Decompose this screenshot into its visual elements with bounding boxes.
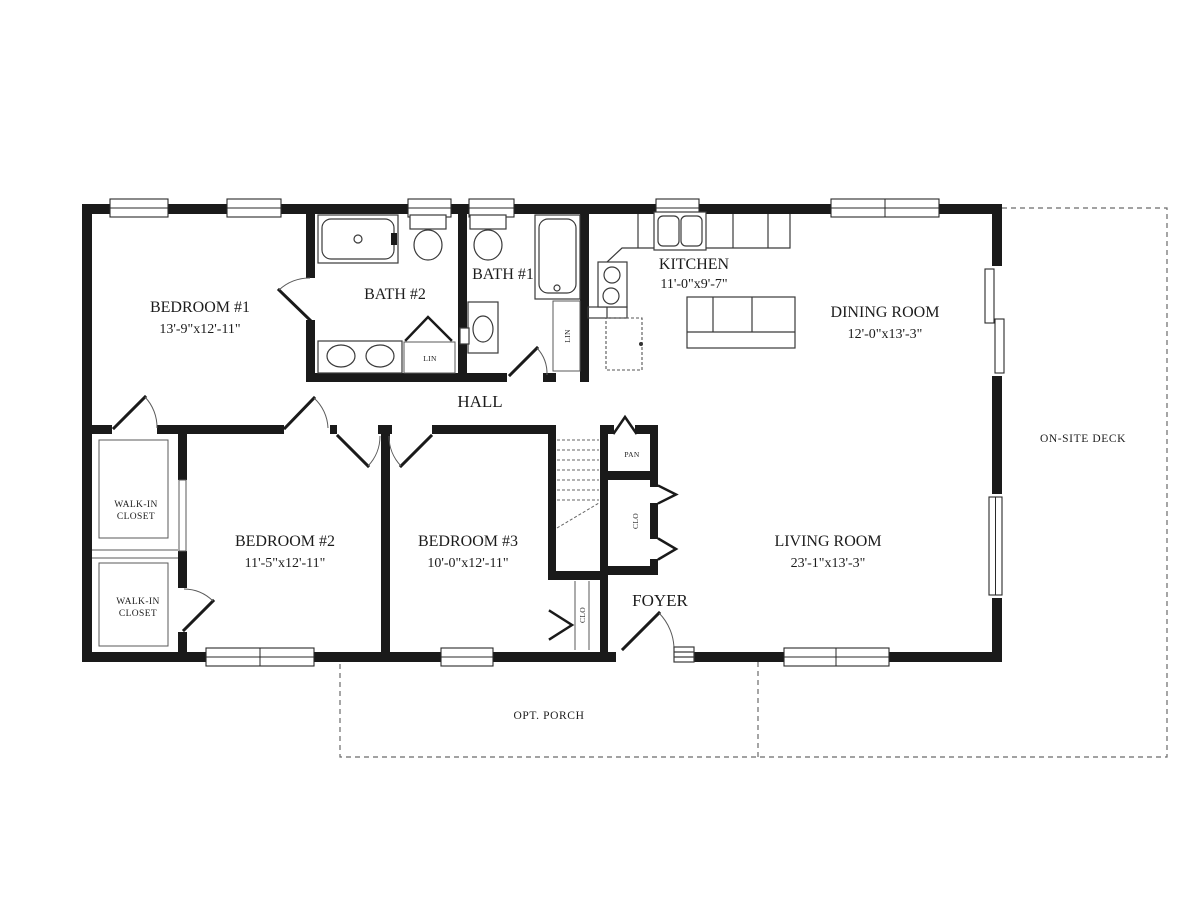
label-walkin2-line2: CLOSET [119,609,157,619]
label-lin-bath2: LIN [423,354,437,363]
dims-living: 23'-1"x13'-3" [791,556,866,571]
toilet [470,215,506,260]
label-dining: DINING ROOM [831,304,940,321]
dims-bedroom1: 13'-9"x12'-11" [159,322,240,337]
label-walkin1-line2: CLOSET [117,512,155,522]
dims-bedroom2: 11'-5"x12'-11" [245,556,326,571]
staircase [557,440,599,528]
label-pantry: PAN [624,450,639,459]
window [227,199,281,217]
foyer-closet-door [550,611,572,639]
pantry-door [614,417,636,433]
dims-dining: 12'-0"x13'-3" [848,327,923,342]
hall-closet-door-lower [659,539,676,559]
window [441,648,493,666]
window [408,199,451,217]
label-bedroom2: BEDROOM #2 [235,533,335,550]
bath1-door [510,348,547,375]
window-double [831,199,939,217]
walkin-closet1-shelving [99,440,168,538]
bedroom1-door [285,398,328,428]
label-walkin2-line1: WALK-IN [116,597,159,607]
toilet [410,215,446,260]
label-foyer: FOYER [632,591,688,610]
hall-closet-door-upper [659,486,676,503]
double-vanity [318,341,402,373]
label-walkin1-line1: WALK-IN [114,500,157,510]
label-living: LIVING ROOM [774,533,881,550]
walkin-closet2-door [184,589,213,630]
walkin-closet1-door [114,397,157,428]
bedroom1-bath2-door [279,278,310,320]
window-double [784,648,889,666]
window-double [206,648,314,666]
floorplan-canvas: BEDROOM #1 13'-9"x12'-11" BATH #2 BATH #… [0,0,1200,900]
label-bath2: BATH #2 [364,286,426,303]
kitchen-sink [654,212,706,250]
dims-kitchen: 11'-0"x9'-7" [660,277,727,292]
label-bedroom3: BEDROOM #3 [418,533,518,550]
range [598,262,627,307]
bathtub [535,215,580,299]
label-kitchen: KITCHEN [659,256,730,273]
label-porch: OPT. PORCH [514,710,585,722]
label-bath1: BATH #1 [472,266,534,283]
label-bedroom1: BEDROOM #1 [150,299,250,316]
bath1-fixtures [460,215,580,371]
window [469,199,514,217]
label-clo-hall: CLO [631,513,640,529]
bathtub [318,215,398,263]
front-door [616,613,694,663]
floorplan-drawing: BEDROOM #1 13'-9"x12'-11" BATH #2 BATH #… [0,0,1200,900]
living-room-side-window [989,494,1004,598]
bedroom3-door [389,436,431,466]
label-deck: ON-SITE DECK [1040,433,1126,445]
dishwasher [606,318,643,370]
lin-closet-door [406,317,451,340]
bedroom2-door [338,436,380,466]
label-clo-foyer: CLO [578,607,587,623]
sliding-deck-door [985,266,1004,376]
window [110,199,168,217]
label-lin-bath1: LIN [563,329,572,343]
kitchen-island [687,297,795,348]
label-hall: HALL [457,392,502,411]
dims-bedroom3: 10'-0"x12'-11" [427,556,508,571]
